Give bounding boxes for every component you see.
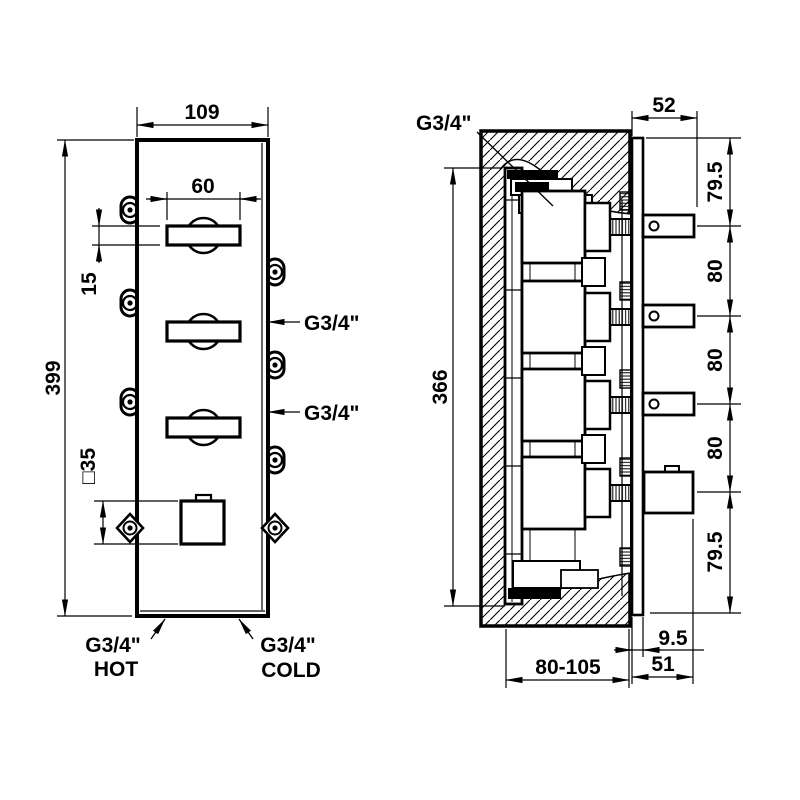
side-square-knob bbox=[644, 472, 693, 513]
dim-knob-size-text: □35 bbox=[77, 448, 100, 484]
hot-callout: G3/4" HOT bbox=[85, 619, 165, 681]
technical-drawing-page: 109 399 60 15 bbox=[0, 0, 800, 800]
side-view: G3/4" 52 366 bbox=[416, 94, 741, 688]
handle-bar-1 bbox=[167, 226, 240, 245]
valve-installation-diagram: 109 399 60 15 bbox=[0, 0, 800, 800]
manifold bbox=[505, 168, 522, 604]
dim-top-offset-text: 79.5 bbox=[704, 161, 727, 202]
dim-plate-thickness-text: 9.5 bbox=[658, 627, 688, 650]
dim-plate-width-text: 109 bbox=[184, 101, 219, 124]
port-callout-low: G3/4" bbox=[268, 402, 359, 425]
dim-body-height-text: 366 bbox=[429, 369, 452, 404]
hot-word-text: HOT bbox=[94, 658, 139, 681]
trim-plate bbox=[632, 138, 643, 615]
dim-handle-height-text: 15 bbox=[78, 272, 101, 296]
hot-port-text: G3/4" bbox=[85, 634, 140, 657]
dim-plate-height-text: 399 bbox=[42, 360, 65, 395]
dim-handle-width-text: 60 bbox=[191, 175, 214, 198]
port-callout-mid: G3/4" bbox=[268, 312, 359, 335]
cold-callout: G3/4" COLD bbox=[239, 619, 321, 682]
handle-bar-3 bbox=[167, 418, 240, 437]
dim-bottom-offset-text: 79.5 bbox=[704, 531, 727, 572]
dim-protrusion-text: 51 bbox=[651, 653, 675, 676]
port-mid-text: G3/4" bbox=[304, 312, 359, 335]
cold-word-text: COLD bbox=[261, 659, 321, 682]
cold-port-text: G3/4" bbox=[260, 634, 315, 657]
link-block-3 bbox=[582, 435, 605, 463]
front-view: 109 399 60 15 bbox=[42, 101, 359, 682]
square-knob-front bbox=[181, 501, 224, 544]
port-low-text: G3/4" bbox=[304, 402, 359, 425]
dim-pitch1-text: 80 bbox=[704, 259, 727, 282]
handle-bar-2 bbox=[167, 322, 240, 341]
dim-handle-depth-text: 52 bbox=[652, 94, 675, 117]
link-block-2 bbox=[582, 347, 605, 375]
link-block-1 bbox=[582, 258, 605, 286]
dim-recess-depth-text: 80-105 bbox=[535, 656, 601, 679]
side-handles bbox=[643, 215, 694, 513]
dim-pitch2-text: 80 bbox=[704, 348, 727, 371]
dim-pitch3-text: 80 bbox=[704, 436, 727, 459]
inlet-label-text: G3/4" bbox=[416, 112, 471, 135]
